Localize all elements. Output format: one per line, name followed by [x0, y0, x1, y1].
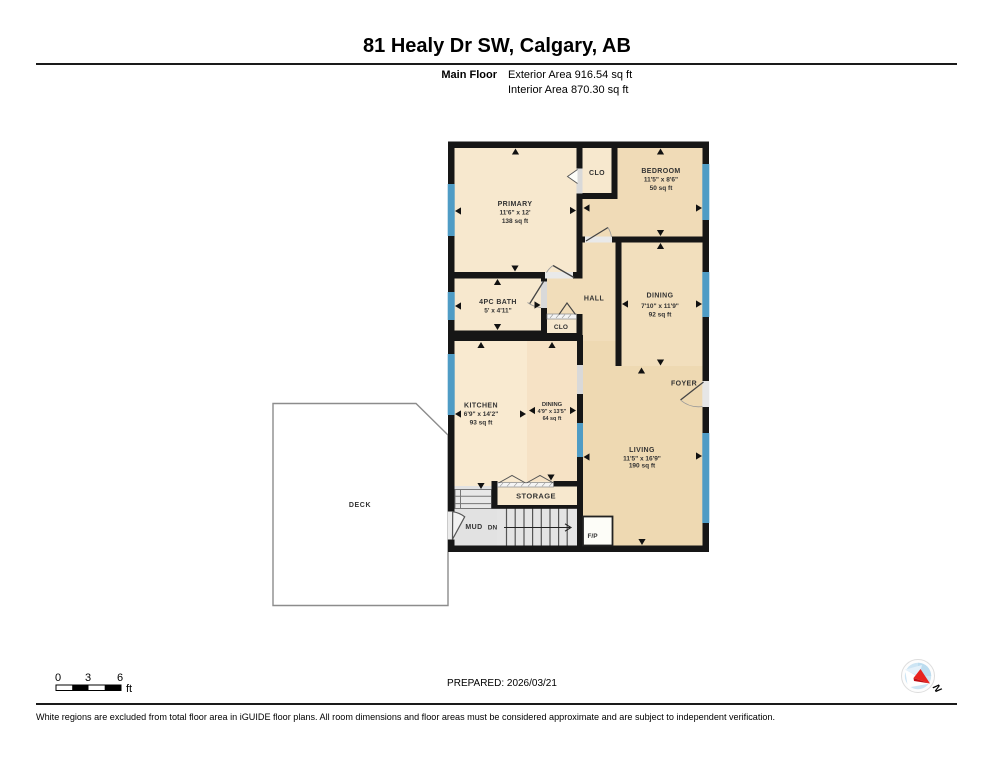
- svg-text:CLO: CLO: [554, 324, 568, 331]
- svg-text:93 sq ft: 93 sq ft: [470, 420, 494, 427]
- svg-text:5' x 4'11": 5' x 4'11": [484, 308, 512, 315]
- svg-text:50 sq ft: 50 sq ft: [650, 185, 674, 192]
- svg-text:11'6" x 12': 11'6" x 12': [499, 210, 531, 217]
- svg-text:MUD: MUD: [465, 524, 482, 531]
- svg-text:92 sq ft: 92 sq ft: [649, 312, 673, 319]
- svg-text:6'9" x 14'2": 6'9" x 14'2": [464, 411, 499, 418]
- svg-text:DECK: DECK: [349, 502, 371, 509]
- svg-text:7'10" x 11'9": 7'10" x 11'9": [641, 303, 679, 310]
- svg-text:DINING: DINING: [542, 402, 563, 408]
- svg-text:DINING: DINING: [647, 293, 674, 300]
- svg-text:FOYER: FOYER: [671, 381, 697, 388]
- svg-text:11'5" x 16'9": 11'5" x 16'9": [623, 456, 661, 463]
- svg-text:BEDROOM: BEDROOM: [641, 168, 680, 175]
- svg-text:DN: DN: [488, 525, 498, 532]
- svg-text:4PC BATH: 4PC BATH: [479, 299, 517, 306]
- svg-text:11'5" x 8'6": 11'5" x 8'6": [644, 177, 678, 184]
- svg-text:STORAGE: STORAGE: [516, 492, 556, 501]
- svg-text:138 sq ft: 138 sq ft: [502, 218, 529, 225]
- svg-text:F/P: F/P: [587, 533, 598, 540]
- svg-text:HALL: HALL: [584, 296, 605, 303]
- svg-text:PRIMARY: PRIMARY: [498, 201, 533, 208]
- svg-text:4'9" x 13'5": 4'9" x 13'5": [538, 409, 567, 415]
- svg-text:190 sq ft: 190 sq ft: [629, 463, 656, 470]
- svg-text:LIVING: LIVING: [629, 447, 655, 454]
- svg-text:CLO: CLO: [589, 170, 605, 177]
- svg-text:64 sq ft: 64 sq ft: [543, 416, 562, 422]
- svg-text:KITCHEN: KITCHEN: [464, 403, 498, 410]
